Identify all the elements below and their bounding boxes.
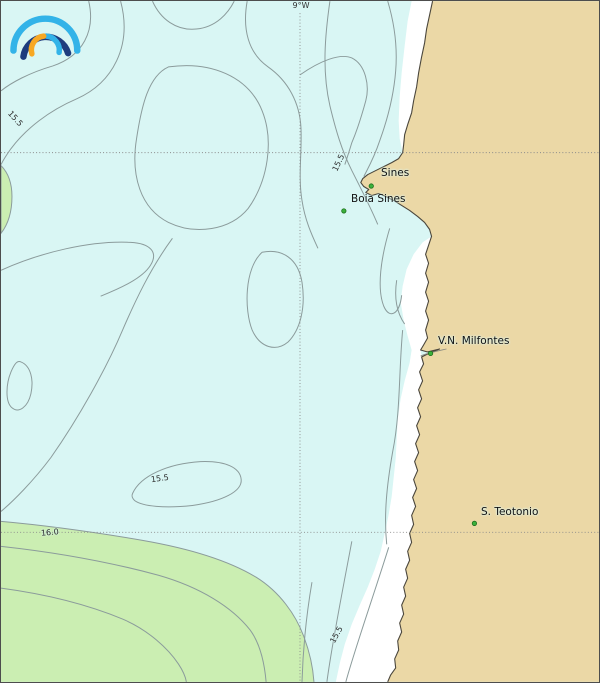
map-canvas: 9°W Sines Boia Sines V.N. Milfontes S. T… <box>0 0 600 683</box>
place-dot-s-teotonio <box>472 521 476 525</box>
meridian-label: 9°W <box>286 2 316 10</box>
place-dot-boia-sines <box>342 209 346 213</box>
place-dot-sines <box>369 184 373 188</box>
place-dot-vn-milfontes <box>428 351 432 355</box>
place-label-sines: Sines <box>381 168 409 179</box>
place-label-s-teotonio: S. Teotonio <box>481 507 538 518</box>
place-label-boia-sines: Boia Sines <box>351 194 405 205</box>
contour-label-160-lower-left: 16.0 <box>41 528 59 538</box>
place-label-vn-milfontes: V.N. Milfontes <box>438 336 509 347</box>
